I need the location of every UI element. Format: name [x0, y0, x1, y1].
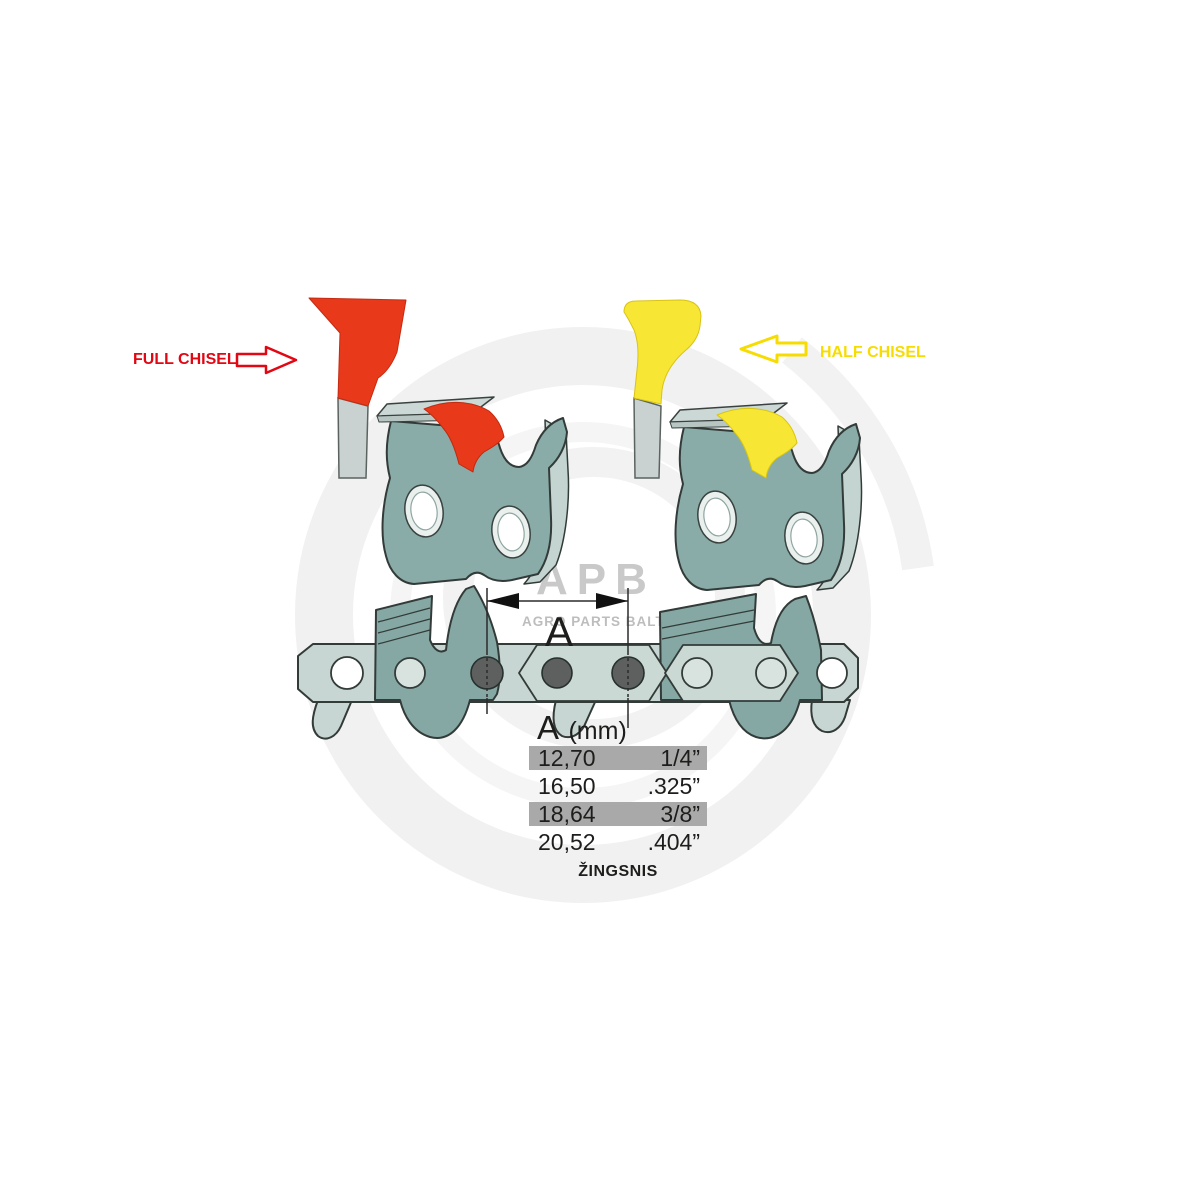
pitch-header-symbol: A [537, 709, 559, 746]
cutter-link-full-chisel [377, 397, 569, 584]
cutter-link-half-chisel [670, 403, 862, 590]
pitch-inch-value: .404” [648, 829, 707, 856]
blade-shank [634, 398, 661, 478]
pitch-mm-value: 16,50 [529, 773, 596, 800]
dimension-label: A [545, 608, 573, 655]
blade-profile-red [309, 298, 406, 406]
diagram-canvas: APB AGRO PARTS BALTIJA [0, 0, 1188, 1188]
full-chisel-arrow-icon [237, 347, 296, 373]
pitch-table-header: A (mm) [529, 710, 707, 746]
pitch-caption: ŽINGSNIS [529, 863, 707, 881]
pitch-table: A (mm) 12,70 1/4” 16,50 .325” 18,64 3/8”… [529, 710, 707, 881]
pitch-mm-value: 20,52 [529, 829, 596, 856]
full-chisel-label: FULL CHISEL [133, 351, 237, 368]
pitch-row: 12,70 1/4” [529, 746, 707, 770]
pitch-mm-value: 12,70 [529, 745, 596, 772]
pitch-header-unit: (mm) [568, 717, 626, 745]
half-chisel-label: HALF CHISEL [820, 344, 926, 361]
chainsaw-chain-diagram: APB AGRO PARTS BALTIJA [0, 0, 1188, 1188]
chain-rivets [471, 657, 644, 689]
pitch-inch-value: 1/4” [660, 745, 707, 772]
dimension-arrowhead-left [487, 593, 519, 609]
pitch-inch-value: 3/8” [660, 801, 707, 828]
pitch-inch-value: .325” [648, 773, 707, 800]
pitch-row: 18,64 3/8” [529, 802, 707, 826]
pitch-row: 20,52 .404” [529, 830, 707, 854]
pitch-mm-value: 18,64 [529, 801, 596, 828]
pitch-row: 16,50 .325” [529, 774, 707, 798]
blade-shank [338, 398, 368, 478]
